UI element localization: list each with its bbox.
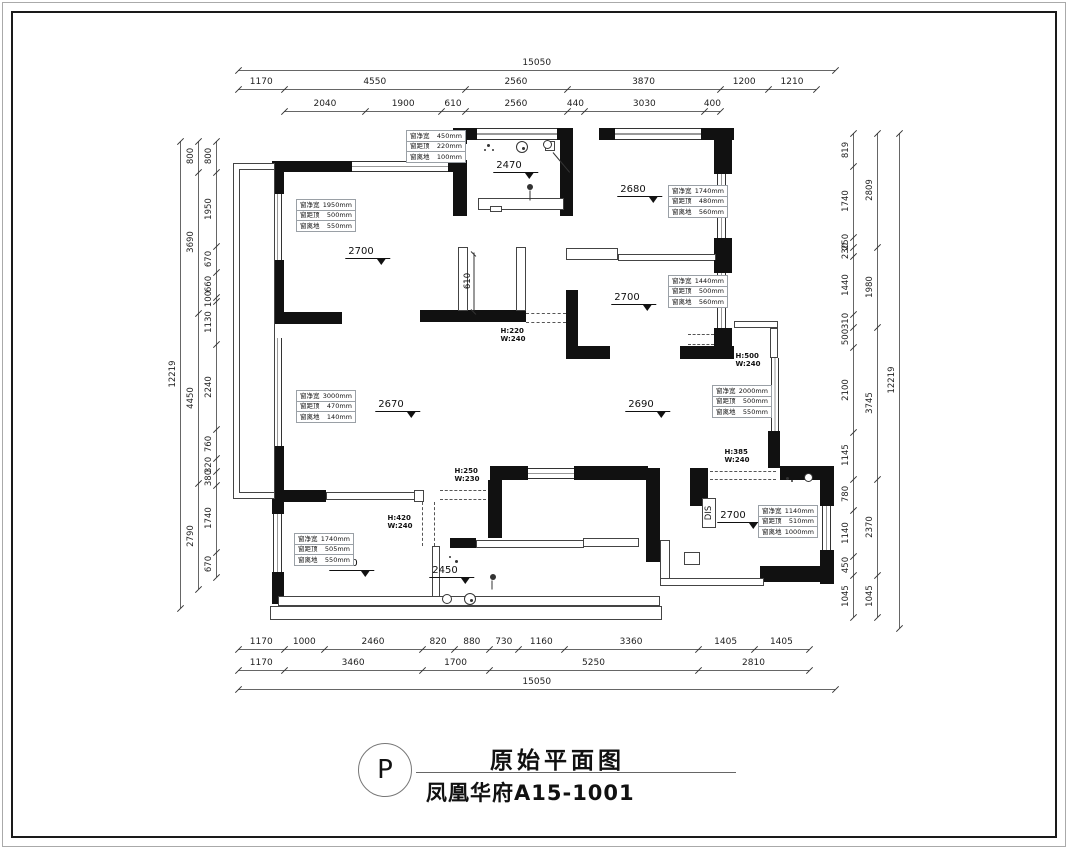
- window-segment: [822, 506, 831, 550]
- dimension-label: 2460: [362, 638, 385, 647]
- window-annotation-label: 窗离地: [672, 299, 692, 306]
- window-annotation-label: 窗离地: [410, 154, 430, 161]
- window-annotation-value: 560mm: [699, 299, 724, 306]
- wall-segment: [714, 140, 732, 174]
- dimension-label: 1980: [866, 276, 875, 298]
- dimension-label: 15050: [522, 59, 551, 68]
- window-annotation-value: 1740mm: [321, 536, 350, 543]
- level-value: 2670: [378, 399, 403, 410]
- dimension-label: 380: [205, 470, 214, 486]
- dimension-line: [284, 111, 720, 112]
- dimension-label: 1405: [714, 638, 737, 647]
- window-annotation-value: 2000mm: [739, 388, 768, 395]
- dimension-label: 310: [842, 313, 851, 329]
- wall-segment: [566, 346, 610, 359]
- wall-segment: [760, 566, 822, 582]
- dimension-label: 4450: [187, 387, 196, 409]
- dimension-label: 1900: [392, 100, 415, 109]
- opening-size-label: H:385W:240: [725, 448, 750, 465]
- window-annotation-row: 窗离地1000mm: [758, 526, 818, 538]
- dimension-label: 1145: [842, 445, 851, 467]
- wall-segment: [680, 346, 734, 359]
- fixture-symbol: [487, 144, 490, 147]
- level-marker: 2700: [717, 510, 762, 523]
- window-annotation-label: 窗净宽: [672, 278, 692, 285]
- dimension-line: [238, 670, 809, 671]
- thin-wall-segment: [516, 247, 526, 311]
- dimension-line: [853, 133, 854, 617]
- dimension-label: 1740: [205, 508, 214, 530]
- window-annotation-label: 窗离地: [300, 414, 320, 421]
- window-annotation-value: 500mm: [327, 212, 352, 219]
- dimension-label: 1170: [250, 638, 273, 647]
- fixture-symbol: [791, 480, 793, 482]
- window-annotation-label: 窗离地: [672, 209, 692, 216]
- dimension-label: 1160: [530, 638, 553, 647]
- wall-segment: [488, 480, 502, 538]
- window-annotation-value: 1140mm: [785, 508, 814, 515]
- dimension-label: 1740: [842, 191, 851, 213]
- window-annotation-value: 500mm: [699, 288, 724, 295]
- level-marker: 2690: [625, 399, 670, 412]
- fixture-symbol: [522, 147, 525, 150]
- dimension-line: [899, 133, 900, 628]
- window-annotation-value: 480mm: [699, 198, 724, 205]
- wall-segment: [272, 312, 342, 324]
- thin-wall-segment: [618, 254, 716, 261]
- dimension-label: 670: [205, 556, 214, 572]
- window-segment: [352, 161, 448, 172]
- dimension-label: 3360: [620, 638, 643, 647]
- window-annotation: 窗净宽1740mm窗距顶480mm窗离地560mm: [668, 186, 728, 218]
- dimension-label: 610: [444, 100, 461, 109]
- opening-size-line: W:240: [725, 456, 750, 464]
- wall-segment: [820, 550, 834, 584]
- wall-segment: [272, 161, 352, 172]
- window-annotation-label: 窗距顶: [716, 398, 736, 405]
- dimension-label: 2100: [842, 379, 851, 401]
- thin-wall-segment: [270, 606, 662, 620]
- dimension-label: 820: [429, 638, 446, 647]
- dimension-label: 730: [495, 638, 512, 647]
- window-annotation-label: 窗距顶: [410, 143, 430, 150]
- level-triangle-icon: [461, 577, 471, 584]
- opening-size-line: H:420: [388, 514, 413, 522]
- window-annotation-label: 窗距顶: [300, 403, 320, 410]
- window-annotation: 窗净宽1140mm窗距顶510mm窗离地1000mm: [758, 506, 818, 538]
- window-annotation-value: 3000mm: [323, 393, 352, 400]
- window-annotation-value: 550mm: [327, 223, 352, 230]
- dimension-label: 1700: [444, 659, 467, 668]
- thin-wall-segment: [583, 538, 639, 547]
- window-annotation-value: 505mm: [325, 546, 350, 553]
- fixture-symbol: [470, 599, 473, 602]
- title-block: P 原始平面图 凤凰华府A15-1001: [330, 735, 750, 815]
- window-annotation-label: 窗净宽: [716, 388, 736, 395]
- window-annotation-value: 1950mm: [323, 202, 352, 209]
- door-opening-dash: [440, 490, 486, 491]
- thin-wall-segment: [566, 248, 618, 260]
- dimension-label: 2790: [187, 525, 196, 547]
- window-annotation-label: 窗距顶: [672, 198, 692, 205]
- dimension-line: [238, 89, 816, 90]
- level-marker: 2670: [375, 399, 420, 412]
- thin-wall-segment: [770, 328, 778, 358]
- dimension-label: 3030: [633, 100, 656, 109]
- dimension-label: 440: [567, 100, 584, 109]
- fixture-symbol: [455, 560, 458, 563]
- opening-size-label: H:220W:240: [501, 327, 526, 344]
- dimension-label: 230: [842, 243, 851, 259]
- window-annotation-value: 100mm: [437, 154, 462, 161]
- opening-size-line: W:240: [501, 335, 526, 343]
- dimension-label: 1405: [770, 638, 793, 647]
- dimension-label: 880: [463, 638, 480, 647]
- dimension-label: 400: [704, 100, 721, 109]
- thin-wall-segment: [239, 169, 275, 493]
- door-opening-dash: [434, 502, 435, 546]
- window-annotation-value: 1000mm: [785, 529, 814, 536]
- thin-wall-segment: [476, 540, 584, 548]
- wall-segment: [467, 128, 477, 140]
- dimension-label: 1200: [733, 78, 756, 87]
- door-opening-dash: [422, 502, 423, 546]
- dimension-label: 1210: [781, 78, 804, 87]
- dimension-label: 1045: [866, 585, 875, 607]
- wall-segment: [490, 466, 528, 480]
- dimension-label: 500: [842, 329, 851, 345]
- window-annotation-label: 窗离地: [762, 529, 782, 536]
- window-annotation-row: 窗离地550mm: [294, 554, 354, 566]
- fixture-symbol: [490, 574, 496, 580]
- dimension-label: 3690: [187, 231, 196, 253]
- window-annotation-value: 470mm: [327, 403, 352, 410]
- window-annotation-label: 窗净宽: [300, 202, 320, 209]
- dimension-line: [877, 133, 878, 617]
- thin-wall-segment: [490, 206, 502, 212]
- window-annotation-row: 窗离地560mm: [668, 296, 728, 308]
- door-opening-dash: [526, 322, 566, 323]
- level-value: 2700: [720, 510, 745, 521]
- level-value: 2450: [432, 565, 457, 576]
- opening-size-label: H:420W:240: [388, 514, 413, 531]
- opening-size-line: W:240: [388, 522, 413, 530]
- level-triangle-icon: [361, 570, 371, 577]
- level-marker: 2700: [345, 246, 390, 259]
- dimension-label: 2560: [504, 100, 527, 109]
- window-annotation: 窗净宽1950mm窗距顶500mm窗离地550mm: [296, 200, 356, 232]
- thin-wall-segment: [660, 540, 670, 582]
- wall-segment: [599, 128, 615, 140]
- window-segment: [771, 358, 779, 431]
- window-annotation-row: 窗离地560mm: [668, 206, 728, 218]
- level-triangle-icon: [643, 304, 653, 311]
- level-value: 2700: [614, 292, 639, 303]
- door-opening-dash: [688, 334, 714, 335]
- window-annotation-value: 560mm: [699, 209, 724, 216]
- window-annotation-row: 窗离地140mm: [296, 411, 356, 423]
- wall-segment: [820, 480, 834, 506]
- dimension-label: 2040: [313, 100, 336, 109]
- dimension-label: 100: [205, 291, 214, 307]
- door-opening-dash: [710, 471, 776, 472]
- window-annotation-value: 500mm: [743, 398, 768, 405]
- window-annotation-label: 窗距顶: [672, 288, 692, 295]
- fixture-symbol: [442, 594, 452, 604]
- level-value: 2680: [620, 184, 645, 195]
- window-segment: [477, 128, 557, 140]
- project-name: 凤凰华府A15-1001: [426, 777, 635, 807]
- opening-size-line: H:220: [501, 327, 526, 335]
- wall-segment: [701, 128, 734, 140]
- dimension-label: 1440: [842, 274, 851, 296]
- drawing-title: 原始平面图: [490, 741, 625, 775]
- window-annotation-value: 550mm: [743, 409, 768, 416]
- fixture-symbol: [449, 556, 451, 558]
- window-segment: [273, 514, 282, 572]
- line-mark: [530, 191, 531, 201]
- window-annotation-label: 窗净宽: [300, 393, 320, 400]
- window-annotation-value: 510mm: [789, 518, 814, 525]
- dimension-label: 2240: [205, 376, 214, 398]
- wall-segment: [453, 160, 467, 216]
- wall-segment: [646, 468, 660, 562]
- door-opening-dash: [526, 313, 566, 314]
- level-marker: 2470: [493, 160, 538, 173]
- window-segment: [615, 128, 701, 140]
- window-annotation: 窗净宽450mm窗距顶220mm窗离地100mm: [406, 131, 466, 163]
- thin-wall-segment: [734, 321, 778, 328]
- dimension-label: 12219: [169, 361, 178, 388]
- level-marker: 2680: [617, 184, 662, 197]
- drawing-sheet: 1505011704550256038701200121020401900610…: [0, 0, 1068, 849]
- dimension-label: 800: [187, 148, 196, 164]
- level-marker: 2700: [611, 292, 656, 305]
- dimension-label: 1950: [205, 198, 214, 220]
- window-annotation-label: 窗距顶: [298, 546, 318, 553]
- thin-wall-segment: [414, 490, 424, 502]
- window-annotation-row: 窗离地550mm: [296, 220, 356, 232]
- window-annotation-label: 窗离地: [300, 223, 320, 230]
- window-annotation-value: 550mm: [325, 557, 350, 564]
- window-annotation: 窗净宽3000mm窗距顶470mm窗离地140mm: [296, 391, 356, 423]
- fixture-symbol: [543, 140, 552, 149]
- opening-size-label: H:250W:230: [455, 467, 480, 484]
- dimension-label: 2370: [866, 516, 875, 538]
- dimension-label: 4550: [363, 78, 386, 87]
- window-annotation-value: 1440mm: [695, 278, 724, 285]
- fixture-symbol: [786, 477, 789, 480]
- dimension-label: 1000: [293, 638, 316, 647]
- distribution-box-label: DIS: [704, 506, 714, 520]
- dimension-label: 819: [842, 141, 851, 157]
- level-value: 2690: [628, 399, 653, 410]
- fixture-symbol: [804, 473, 813, 482]
- window-annotation-label: 窗净宽: [762, 508, 782, 515]
- inline-dimension-label: 610: [463, 273, 473, 289]
- level-triangle-icon: [377, 258, 387, 265]
- dimension-label: 1170: [250, 659, 273, 668]
- window-annotation-label: 窗距顶: [762, 518, 782, 525]
- dimension-label: 450: [842, 557, 851, 573]
- level-triangle-icon: [525, 172, 535, 179]
- level-triangle-icon: [649, 196, 659, 203]
- door-opening-dash: [688, 344, 714, 345]
- wall-segment: [574, 466, 648, 480]
- door-opening-dash: [710, 479, 776, 480]
- level-marker: 2450: [429, 565, 474, 578]
- dimension-label: 800: [205, 148, 214, 164]
- window-annotation-label: 窗离地: [298, 557, 318, 564]
- wall-segment: [714, 238, 732, 260]
- window-annotation-value: 1740mm: [695, 188, 724, 195]
- window-annotation-value: 220mm: [437, 143, 462, 150]
- window-annotation: 窗净宽1740mm窗距顶505mm窗离地550mm: [294, 534, 354, 566]
- opening-size-line: W:240: [736, 360, 761, 368]
- window-annotation: 窗净宽2000mm窗距顶500mm窗离地550mm: [712, 386, 772, 418]
- opening-size-line: W:230: [455, 475, 480, 483]
- fixture-symbol: [527, 184, 533, 190]
- dimension-label: 15050: [522, 678, 551, 687]
- dimension-label: 2809: [866, 179, 875, 201]
- window-annotation-label: 窗离地: [716, 409, 736, 416]
- dimension-label: 3870: [632, 78, 655, 87]
- dimension-label: 780: [842, 486, 851, 502]
- wall-segment: [450, 538, 476, 548]
- dimension-label: 3745: [866, 392, 875, 414]
- window-annotation-label: 窗距顶: [300, 212, 320, 219]
- window-annotation-label: 窗净宽: [298, 536, 318, 543]
- dimension-label: 1140: [842, 522, 851, 544]
- title-badge: P: [358, 743, 412, 797]
- dimension-label: 1130: [205, 311, 214, 333]
- opening-size-line: H:500: [736, 352, 761, 360]
- level-value: 2470: [496, 160, 521, 171]
- dimension-label: 1170: [250, 78, 273, 87]
- dimension-label: 2560: [504, 78, 527, 87]
- thin-wall-segment: [684, 552, 700, 565]
- thin-wall-segment: [326, 492, 416, 500]
- wall-segment: [557, 128, 573, 140]
- window-annotation-value: 450mm: [437, 133, 462, 140]
- wall-segment: [284, 490, 326, 502]
- dimension-label: 670: [205, 251, 214, 267]
- window-annotation: 窗净宽1440mm窗距顶500mm窗离地560mm: [668, 276, 728, 308]
- opening-size-line: H:250: [455, 467, 480, 475]
- dimension-line: [216, 141, 217, 577]
- dimension-line: [198, 141, 199, 589]
- dimension-label: 2810: [742, 659, 765, 668]
- level-triangle-icon: [657, 411, 667, 418]
- wall-segment: [768, 431, 780, 468]
- dimension-line: [238, 689, 835, 690]
- dimension-line: [238, 70, 835, 71]
- line-mark: [492, 581, 493, 590]
- dimension-label: 12219: [888, 367, 897, 394]
- line-mark: [474, 253, 475, 311]
- window-segment: [528, 468, 574, 479]
- fixture-symbol: [492, 149, 494, 151]
- level-triangle-icon: [407, 411, 417, 418]
- door-opening-dash: [440, 499, 486, 500]
- dimension-label: 760: [205, 436, 214, 452]
- opening-size-label: H:500W:240: [736, 352, 761, 369]
- thin-wall-segment: [660, 578, 764, 586]
- dimension-line: [180, 141, 181, 608]
- fixture-symbol: [484, 149, 486, 151]
- window-annotation-label: 窗净宽: [410, 133, 430, 140]
- opening-size-line: H:385: [725, 448, 750, 456]
- dimension-label: 5250: [582, 659, 605, 668]
- dimension-label: 1045: [842, 585, 851, 607]
- level-value: 2700: [348, 246, 373, 257]
- dimension-label: 3460: [342, 659, 365, 668]
- window-annotation-row: 窗离地550mm: [712, 406, 772, 418]
- window-annotation-label: 窗净宽: [672, 188, 692, 195]
- wall-segment: [714, 260, 732, 273]
- window-annotation-row: 窗离地100mm: [406, 151, 466, 163]
- window-annotation-value: 140mm: [327, 414, 352, 421]
